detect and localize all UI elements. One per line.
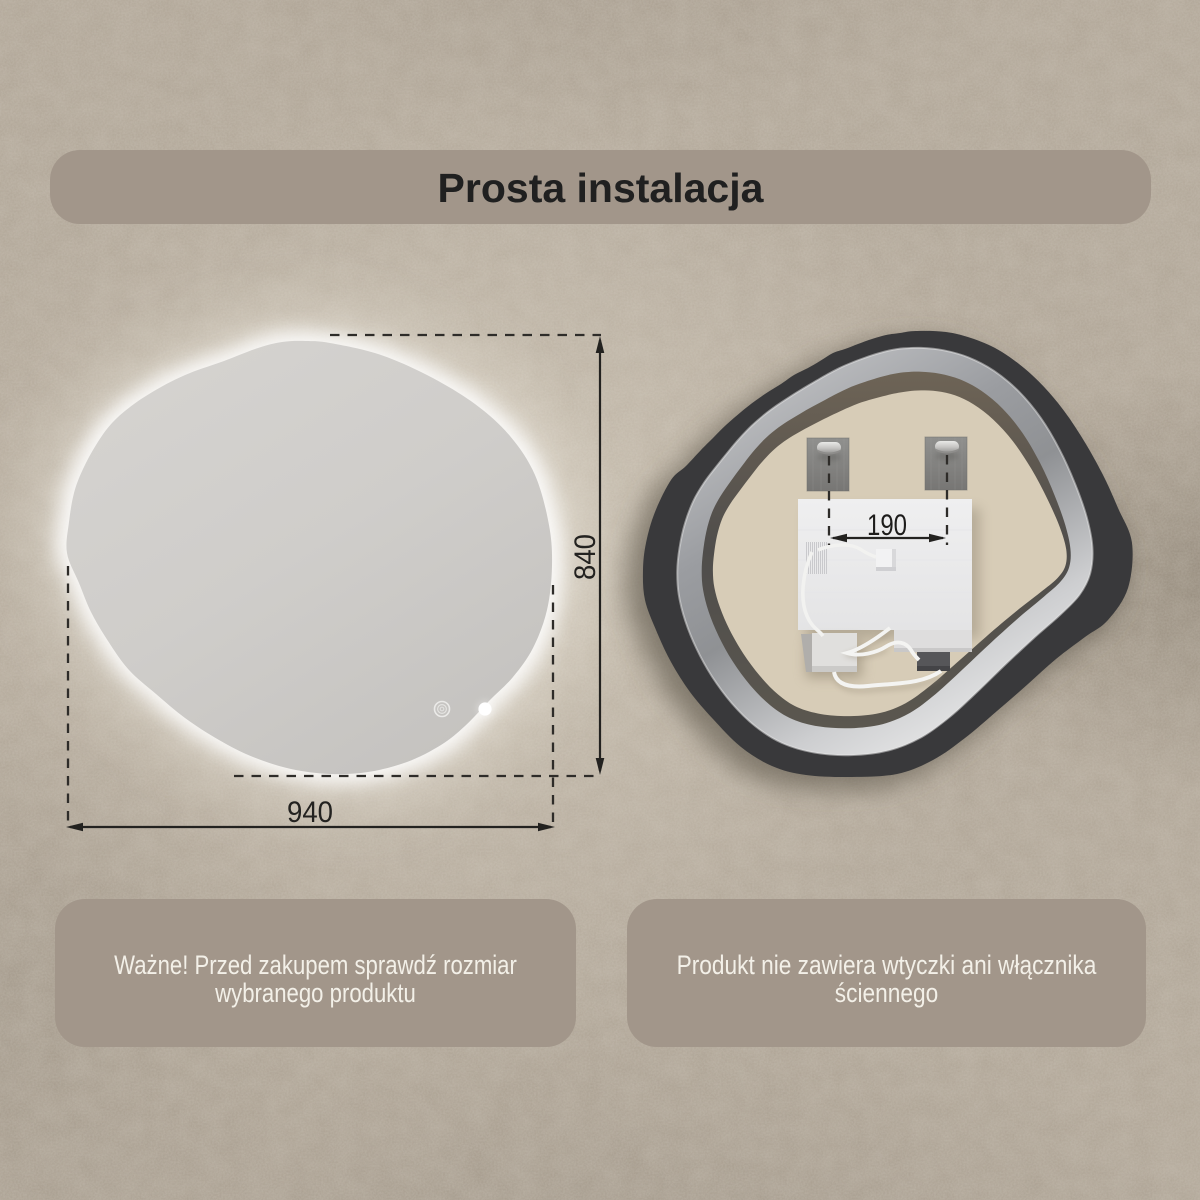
svg-text:190: 190 [867,509,907,542]
svg-text:940: 940 [287,796,333,829]
svg-text:840: 840 [569,534,602,580]
